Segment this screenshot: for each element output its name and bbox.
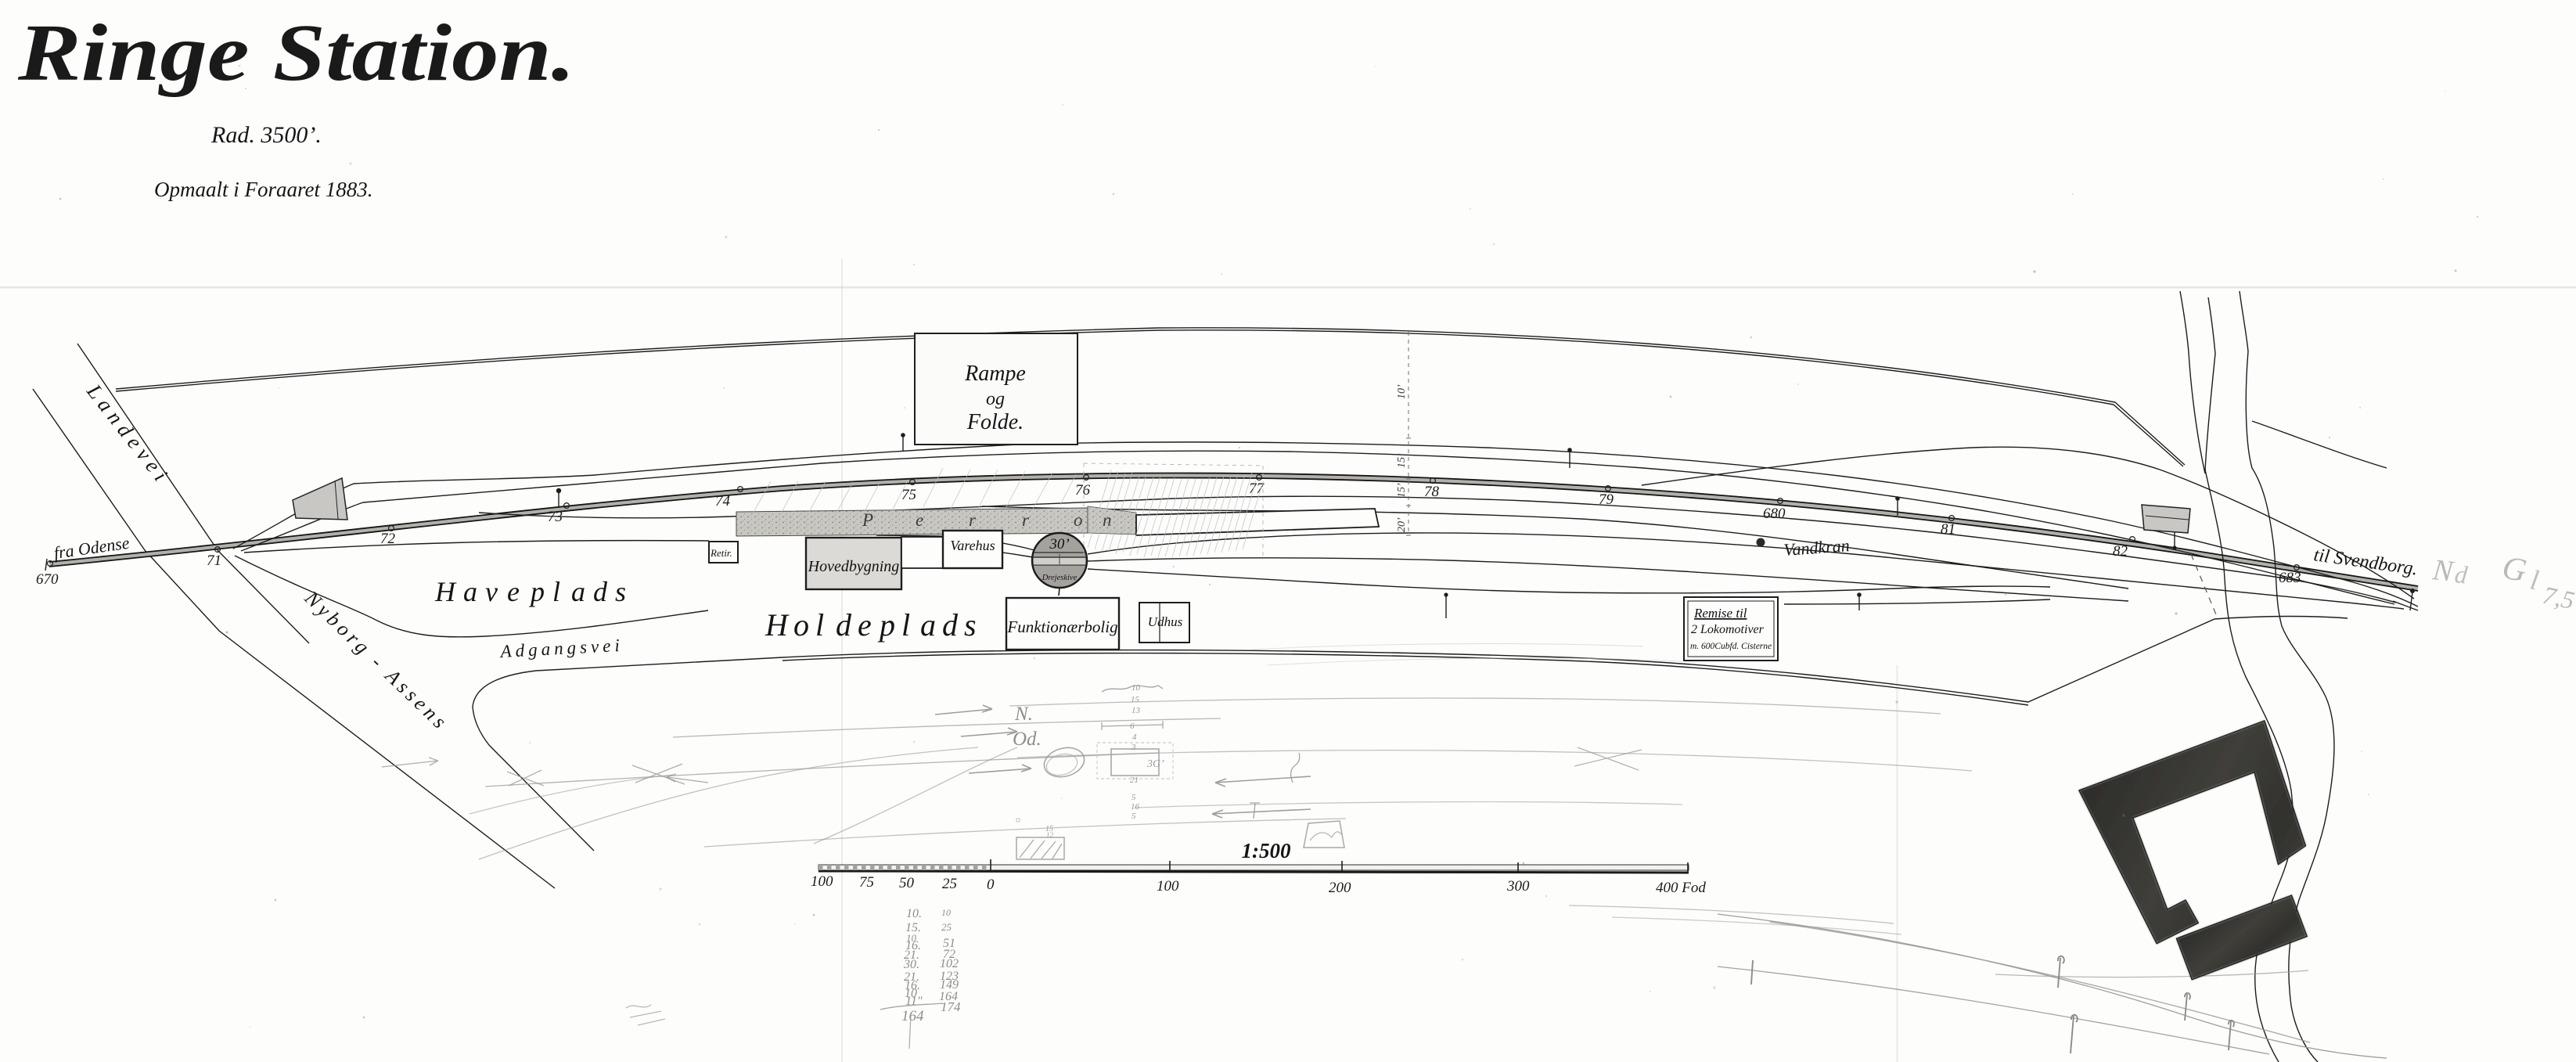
svg-text:3G’: 3G’: [1146, 758, 1164, 770]
svg-text:73: 73: [548, 509, 563, 525]
svg-text:81: 81: [1941, 521, 1955, 538]
svg-text:Folde.: Folde.: [966, 410, 1024, 434]
svg-text:m. 600Cubfd. Cisterne: m. 600Cubfd. Cisterne: [1690, 642, 1772, 651]
svg-text:100: 100: [811, 873, 833, 890]
svg-text:72: 72: [380, 531, 396, 547]
svg-text:174: 174: [941, 999, 961, 1014]
svg-text:79: 79: [1599, 491, 1614, 508]
svg-text:Retir.: Retir.: [710, 547, 732, 559]
svg-text:71: 71: [207, 553, 221, 569]
svg-text:164: 164: [901, 1008, 924, 1024]
svg-text:Hovedbygning: Hovedbygning: [808, 558, 900, 575]
svg-text:400 Fod: 400 Fod: [1656, 880, 1706, 896]
svg-text:10’: 10’: [1396, 384, 1408, 399]
svg-text:Od.: Od.: [1013, 729, 1042, 750]
svg-text:75: 75: [859, 874, 874, 891]
svg-text:10.: 10.: [906, 907, 922, 920]
svg-text:2 Lokomotiver: 2 Lokomotiver: [1691, 623, 1765, 636]
svg-text:3: 3: [1131, 743, 1136, 752]
svg-text:30.: 30.: [903, 958, 919, 971]
svg-text:50: 50: [899, 875, 915, 891]
svg-text:670: 670: [36, 571, 59, 588]
svg-text:76: 76: [1075, 482, 1091, 499]
svg-text:Holdeplads: Holdeplads: [765, 607, 977, 643]
svg-text:77: 77: [1249, 481, 1265, 497]
svg-text:78: 78: [1424, 484, 1440, 500]
svg-text:680: 680: [1763, 506, 1786, 522]
svg-text:6: 6: [1130, 722, 1135, 731]
svg-text:Rampe: Rampe: [964, 362, 1026, 386]
svg-text:30’: 30’: [1049, 536, 1069, 553]
svg-text:10: 10: [1131, 683, 1141, 693]
svg-text:15’: 15’: [1396, 483, 1408, 498]
svg-text:Varehus: Varehus: [950, 538, 995, 553]
svg-text:20’: 20’: [1396, 517, 1408, 532]
svg-text:Remise til: Remise til: [1693, 606, 1747, 621]
svg-text:15’: 15’: [1396, 453, 1408, 468]
svg-text:102: 102: [940, 957, 959, 970]
svg-text:25: 25: [942, 876, 957, 892]
svg-text:200: 200: [1329, 880, 1351, 896]
svg-text:Udhus: Udhus: [1148, 614, 1183, 629]
svg-text:4: 4: [1132, 733, 1137, 742]
svg-text:1:500: 1:500: [1242, 839, 1291, 862]
svg-text:13: 13: [1131, 706, 1141, 715]
svg-text:0: 0: [987, 877, 995, 893]
svg-text:og: og: [986, 389, 1005, 409]
svg-text:Rad. 3500’.: Rad. 3500’.: [210, 122, 322, 148]
svg-text:12: 12: [1046, 831, 1054, 839]
svg-text:Haveplads: Haveplads: [434, 576, 626, 607]
svg-text:Ringe Station.: Ringe Station.: [17, 8, 575, 98]
svg-text:75: 75: [901, 487, 916, 503]
svg-text:21: 21: [1130, 776, 1139, 785]
svg-text:82: 82: [2113, 543, 2128, 560]
svg-text:5: 5: [1131, 812, 1136, 821]
svg-text:5: 5: [1131, 793, 1136, 802]
svg-text:683: 683: [2279, 570, 2301, 586]
svg-text:16: 16: [1131, 802, 1140, 812]
svg-text:N.: N.: [1014, 704, 1033, 725]
svg-text:Opmaalt i Foraaret 1883.: Opmaalt i Foraaret 1883.: [154, 178, 373, 201]
svg-text:74: 74: [715, 493, 731, 509]
svg-text:Funktionærbolig: Funktionærbolig: [1006, 617, 1117, 636]
svg-text:25: 25: [941, 921, 952, 933]
svg-text:15: 15: [1131, 695, 1140, 704]
svg-text:100: 100: [1157, 878, 1179, 895]
svg-text:Drejeskive: Drejeskive: [1042, 574, 1078, 582]
svg-text:10: 10: [941, 907, 951, 918]
svg-text:300: 300: [1506, 878, 1530, 895]
